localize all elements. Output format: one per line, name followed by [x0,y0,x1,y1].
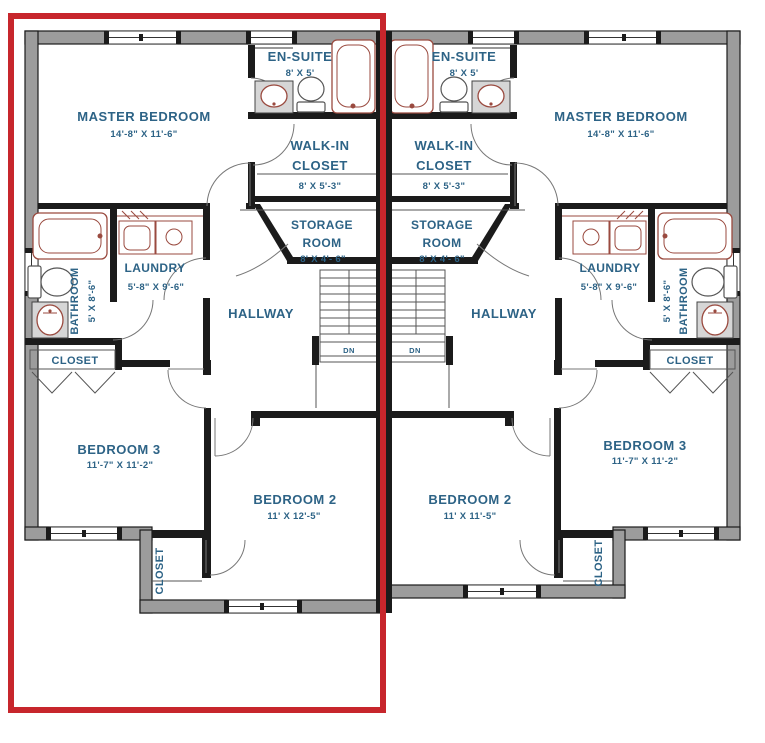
room-dims: 8' X 5' [286,68,315,79]
right-unit-lower-walls [382,530,625,598]
room-dims: 8' X 5'-3" [299,181,342,192]
room-dims: 11'-7" X 11'-2" [87,460,154,471]
room-dims: 14'-8" X 11'-6" [587,129,654,140]
room-label: LAUNDRY [124,261,185,275]
room-label: CLOSET [666,355,713,367]
room-label: CLOSET [154,547,166,594]
room-label: EN-SUITE [268,49,333,64]
room-dims: 11'-7" X 11'-2" [612,456,679,467]
room-dims: 8' X 5'-3" [423,181,466,192]
room-label: BATHROOM [678,267,690,334]
room-label: LAUNDRY [579,261,640,275]
room-label: ROOM [423,236,462,250]
room-label: MASTER BEDROOM [77,109,210,124]
room-dims: 5' X 8'-6" [662,280,673,323]
room-dims: 5'-8" X 9'-6" [128,282,185,293]
room-label: STORAGE [411,218,473,232]
floor-plan-drawing: MASTER BEDROOM 14'-8" X 11'-6" EN-SUITE … [0,0,765,743]
left-unit-lower-walls [140,530,383,613]
room-label: WALK-IN [290,138,349,153]
room-label: BEDROOM 2 [428,492,511,507]
room-label: CLOSET [51,355,98,367]
room-label: STORAGE [291,218,353,232]
room-label: HALLWAY [228,306,294,321]
room-label: BEDROOM 3 [77,442,160,457]
room-dims: 5'-8" X 9'-6" [581,282,638,293]
room-label: BATHROOM [69,267,81,334]
stairs-down-label: DN [409,346,421,355]
floor-plan-page: MASTER BEDROOM 14'-8" X 11'-6" EN-SUITE … [0,0,765,743]
room-label: CLOSET [416,158,472,173]
room-label: ROOM [303,236,342,250]
room-label: HALLWAY [471,306,537,321]
room-dims: 5' X 8'-6" [87,280,98,323]
room-dims: 8' X 4'- 6" [419,254,465,265]
room-label: MASTER BEDROOM [554,109,687,124]
room-label: CLOSET [292,158,348,173]
stairs-down-label: DN [343,346,355,355]
room-label: EN-SUITE [432,49,497,64]
room-label: BEDROOM 2 [253,492,336,507]
room-label: BEDROOM 3 [603,438,686,453]
room-dims: 11' X 12'-5" [267,511,320,522]
room-dims: 8' X 5' [450,68,479,79]
room-label: CLOSET [593,539,605,586]
room-dims: 11' X 11'-5" [444,511,497,522]
room-dims: 8' X 4'- 6" [300,254,346,265]
room-dims: 14'-8" X 11'-6" [110,129,177,140]
room-label: WALK-IN [414,138,473,153]
